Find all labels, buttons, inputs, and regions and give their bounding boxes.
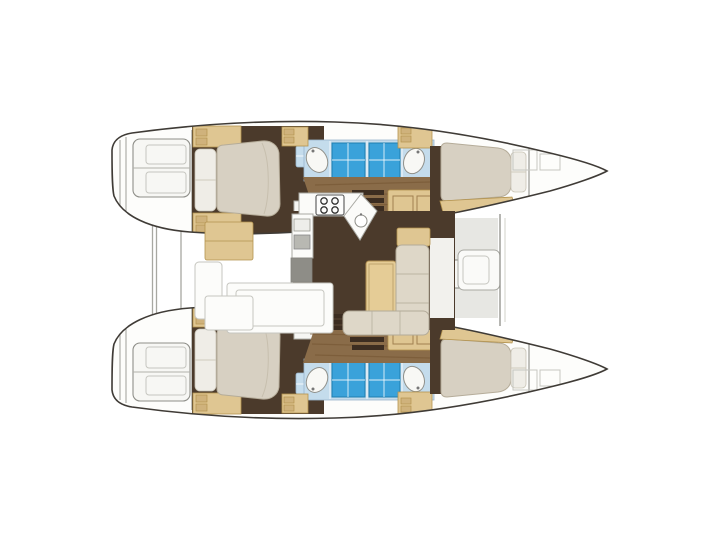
- nav-desk: [205, 222, 253, 260]
- dinette-table: [366, 261, 396, 318]
- floor-plan-image: [0, 0, 720, 539]
- dinette-sofa-bottom: [343, 311, 429, 335]
- stove: [316, 195, 344, 215]
- dinette-back-cabinet: [397, 228, 430, 246]
- aft-cabin-bed: [217, 141, 280, 216]
- catamaran-layout-svg: [0, 0, 720, 539]
- forward-cabin-bed: [441, 143, 511, 201]
- microwave: [294, 235, 310, 249]
- galley-sink: [355, 215, 367, 227]
- fridge: [291, 258, 312, 282]
- galley-appliance-1: [294, 219, 310, 231]
- cockpit-seat: [205, 296, 253, 330]
- saloon-forward-passage: [430, 238, 454, 318]
